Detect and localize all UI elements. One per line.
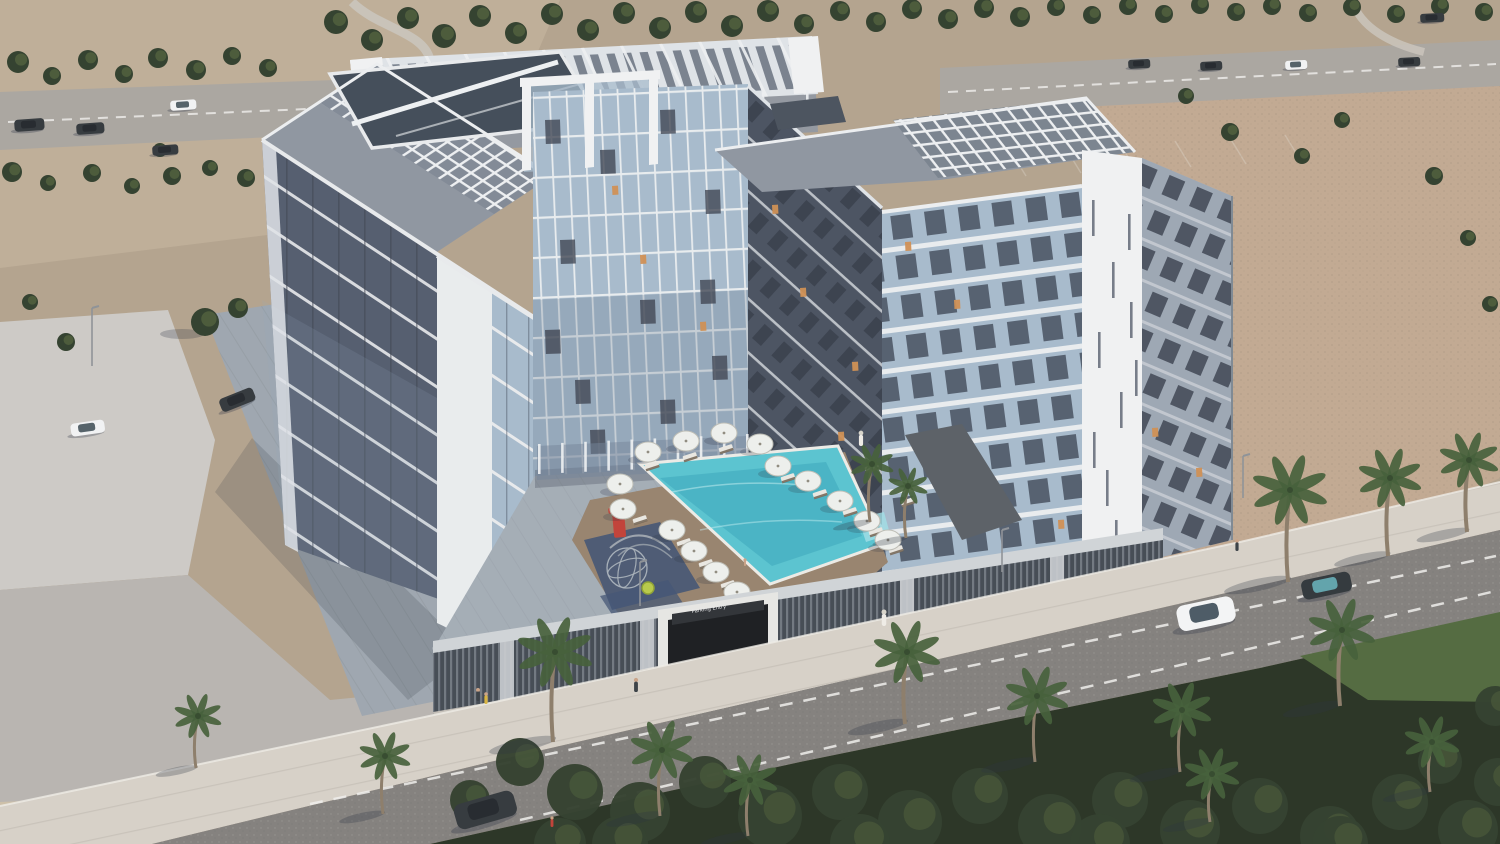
atmospheric-haze bbox=[0, 0, 1500, 844]
architectural-render: Parking Entry bbox=[0, 0, 1500, 844]
aerial-scene: Parking Entry bbox=[0, 0, 1500, 844]
